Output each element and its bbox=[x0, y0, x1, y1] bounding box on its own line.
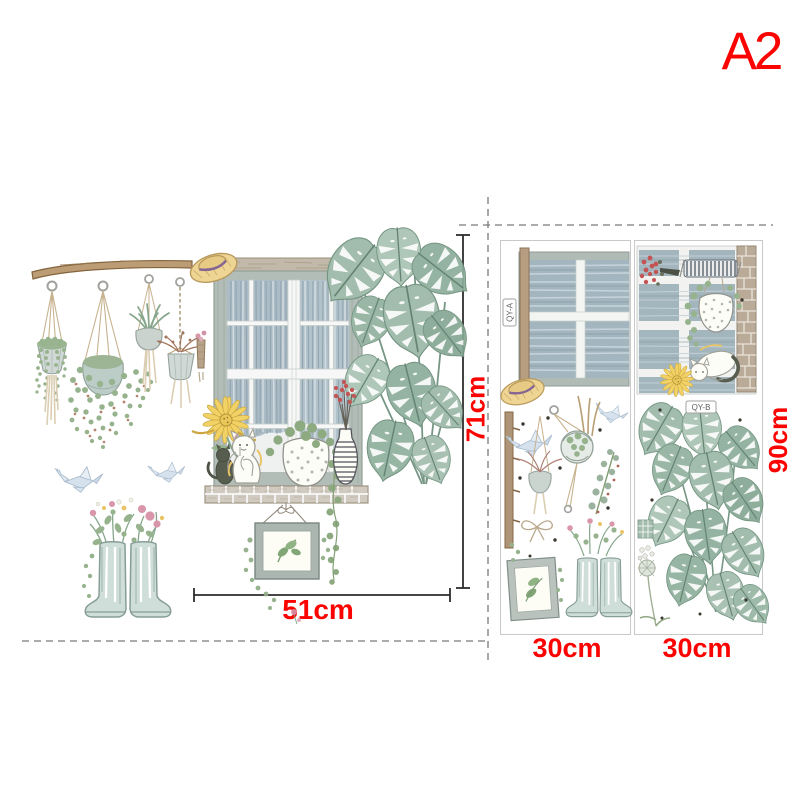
svg-text:90cm: 90cm bbox=[763, 407, 793, 474]
svg-text:30cm: 30cm bbox=[532, 633, 601, 663]
svg-text:A2: A2 bbox=[722, 22, 781, 81]
svg-text:30cm: 30cm bbox=[662, 633, 731, 663]
svg-text:71cm: 71cm bbox=[461, 376, 491, 443]
svg-text:QY-B: QY-B bbox=[692, 403, 711, 412]
svg-text:QY-A: QY-A bbox=[506, 302, 515, 321]
